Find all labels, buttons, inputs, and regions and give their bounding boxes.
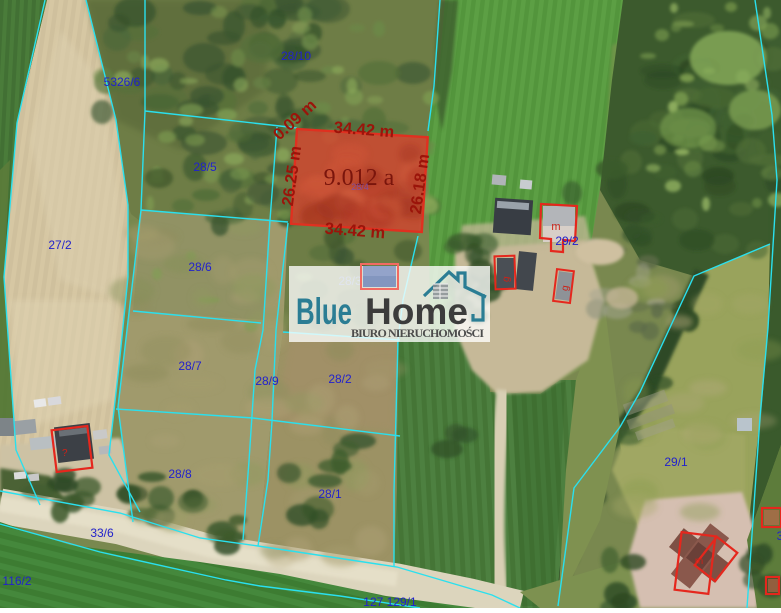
svg-text:?: ? bbox=[62, 448, 68, 459]
svg-text:127 129/1: 127 129/1 bbox=[363, 595, 417, 608]
svg-text:28/8: 28/8 bbox=[168, 467, 192, 481]
svg-text:28/6: 28/6 bbox=[188, 260, 212, 274]
svg-text:28/10: 28/10 bbox=[281, 49, 311, 63]
svg-text:m: m bbox=[551, 221, 560, 233]
svg-text:33/6: 33/6 bbox=[90, 526, 114, 540]
svg-text:28/5: 28/5 bbox=[193, 160, 217, 174]
svg-text:29/2: 29/2 bbox=[555, 234, 579, 248]
svg-text:3: 3 bbox=[777, 529, 781, 543]
svg-text:m: m bbox=[695, 556, 703, 567]
svg-text:28/7: 28/7 bbox=[178, 359, 202, 373]
svg-text:28/2: 28/2 bbox=[328, 372, 352, 386]
svg-text:28/9: 28/9 bbox=[255, 374, 279, 388]
svg-text:5326/6: 5326/6 bbox=[104, 75, 141, 89]
svg-text:BIURO NIERUCHOMOŚCI: BIURO NIERUCHOMOŚCI bbox=[351, 326, 485, 340]
svg-text:28/1: 28/1 bbox=[318, 487, 342, 501]
svg-text:116/2: 116/2 bbox=[2, 574, 31, 588]
svg-text:28/4: 28/4 bbox=[351, 182, 369, 192]
svg-text:Blue: Blue bbox=[296, 291, 352, 332]
svg-text:27/2: 27/2 bbox=[48, 238, 72, 252]
svg-text:29/1: 29/1 bbox=[664, 455, 688, 469]
